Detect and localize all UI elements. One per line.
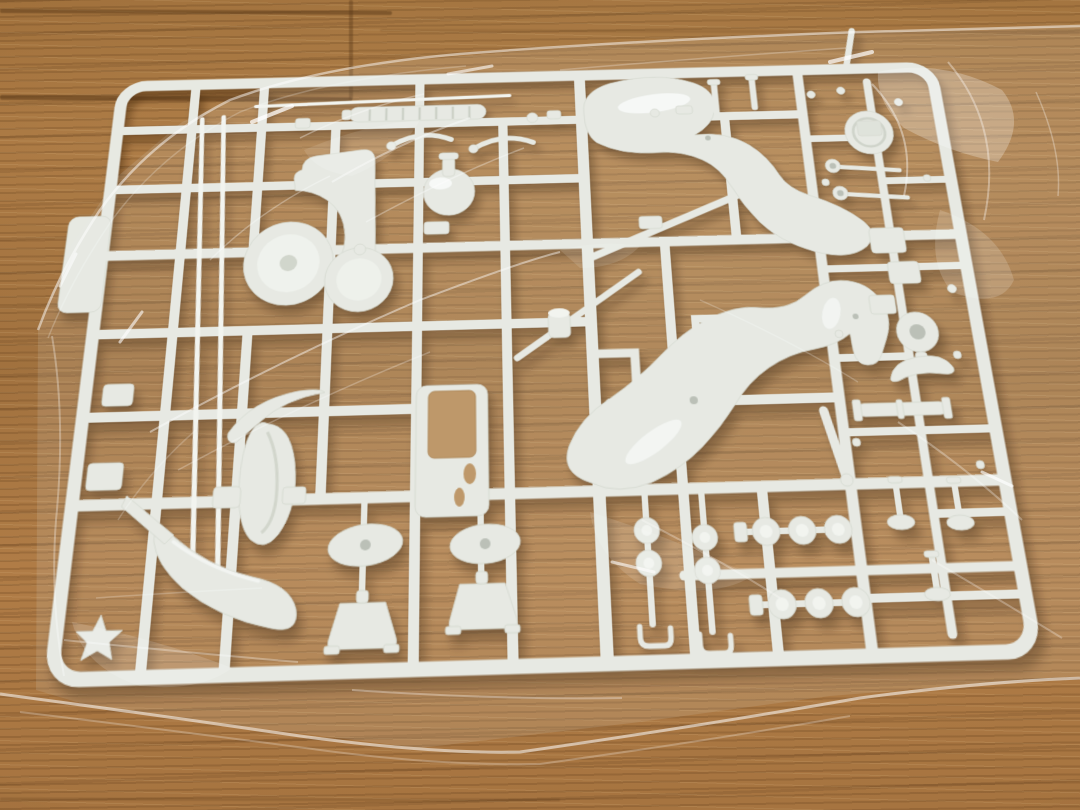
post-cap-1	[707, 79, 720, 85]
sprue-pin-1	[806, 91, 815, 98]
column-rung-5	[847, 428, 991, 432]
rail-nub-1	[354, 244, 366, 255]
sprue-shapes	[43, 55, 1047, 698]
bell-stand-1	[328, 602, 398, 650]
plank-seam	[0, 9, 392, 15]
dome-flange	[439, 153, 459, 160]
disc-chain-tab-1	[733, 522, 748, 542]
trumpet-flange-2	[946, 477, 962, 484]
lever-ball-1	[386, 142, 396, 151]
small-bracket-2	[282, 487, 306, 505]
bell-stand-2	[449, 583, 517, 630]
bell-foot-2a	[445, 626, 460, 635]
plank-seam	[0, 798, 560, 802]
small-fitting-4	[650, 109, 660, 117]
round-cap-notch	[856, 121, 882, 136]
leg-shield-part	[560, 279, 912, 490]
bell-foot-2b	[505, 624, 521, 633]
runner-v4	[413, 83, 420, 663]
runner-v2a	[253, 87, 264, 252]
runner-v5	[503, 122, 513, 661]
hook-part-1	[640, 626, 672, 647]
trumpet-flange-3	[923, 551, 939, 558]
trumpet-foot-2	[946, 515, 976, 531]
tube-flange-1	[852, 400, 863, 421]
trumpet-foot-1	[886, 514, 916, 530]
runner-diagonal-2	[515, 272, 643, 358]
bell-foot-1a	[324, 646, 340, 655]
lever-ball-2	[469, 145, 478, 154]
sprue-pin-3	[894, 98, 903, 105]
sprue-pin-10	[975, 460, 985, 469]
model-kit-sprue	[43, 55, 1047, 698]
plate-part-1	[85, 463, 124, 491]
runner-h8	[684, 566, 1015, 576]
trumpet-stem-3	[932, 557, 937, 588]
sprue-pin-5	[821, 179, 829, 186]
small-bracket-1	[212, 486, 241, 508]
small-fitting-1	[295, 118, 310, 128]
column-rung-2	[882, 179, 946, 181]
small-fitting-3	[547, 110, 561, 118]
cylinder-post-1	[714, 84, 717, 111]
tee-bracket-2	[639, 216, 663, 229]
hook-part-2	[699, 633, 731, 654]
trumpet-flange-1	[887, 476, 903, 483]
photo-model-kit-sprue-in-bag	[0, 0, 1080, 810]
column-rung-6	[934, 512, 1006, 514]
sprue-pin-6	[947, 284, 957, 293]
plank-seam	[380, 29, 1080, 34]
post-cap-2	[745, 74, 758, 80]
small-fitting-2	[527, 113, 538, 123]
muffler-end	[342, 110, 352, 120]
sprue-pin-9	[852, 438, 861, 446]
small-fitting-5	[675, 106, 692, 115]
tee-bracket-1	[424, 221, 449, 234]
tube-flange-2	[941, 397, 953, 418]
dome-stem	[442, 158, 454, 177]
disc-chain-tab-2	[749, 595, 764, 616]
wrench-lever-2	[842, 192, 907, 199]
star-part	[73, 614, 124, 660]
bell-knob-2	[476, 571, 488, 584]
bell-knob-1	[356, 590, 368, 603]
box-part-1	[868, 227, 906, 253]
sprue-pin-2	[836, 87, 845, 94]
bell-foot-1b	[383, 644, 399, 653]
open-box-cavity	[428, 390, 476, 458]
wrench-lever-1	[835, 165, 900, 172]
box-part-3	[868, 295, 896, 314]
plate-part-2	[101, 384, 134, 407]
box-part-2	[887, 261, 922, 284]
sprue-pin-8	[953, 351, 962, 359]
runner-v-center	[579, 79, 607, 657]
cylinder-post-2	[752, 80, 755, 107]
